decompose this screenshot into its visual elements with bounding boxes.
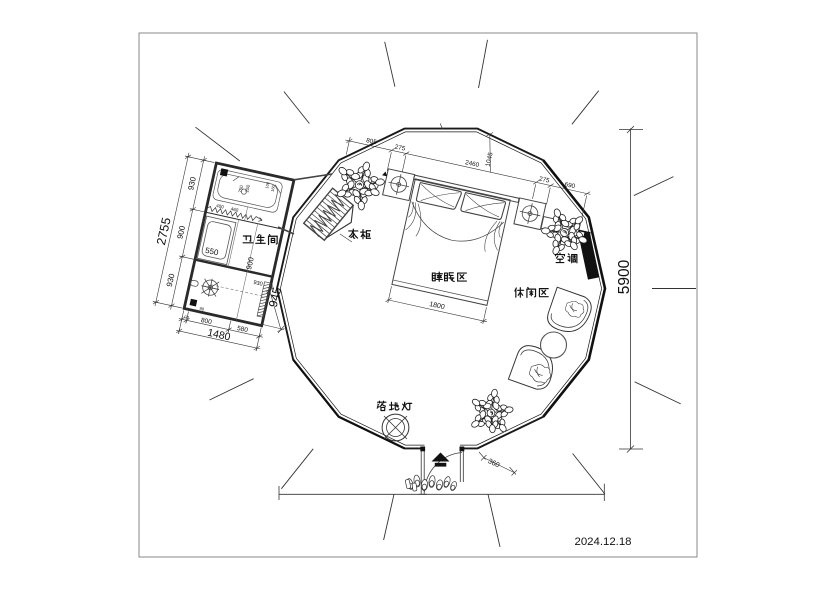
svg-text:5900: 5900 [616,259,633,294]
svg-text:2024.12.18: 2024.12.18 [575,536,632,548]
